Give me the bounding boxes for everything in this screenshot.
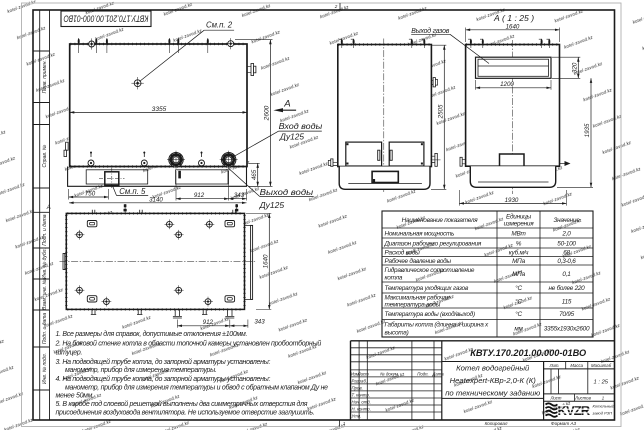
svg-text:Нач. отд.: Нач. отд. <box>352 400 371 405</box>
svg-text:Масштаб: Масштаб <box>591 363 612 368</box>
svg-text:Выход газов: Выход газов <box>411 27 450 35</box>
svg-text:68: 68 <box>563 250 570 257</box>
svg-text:343: 343 <box>254 319 265 326</box>
svg-text:465: 465 <box>251 169 258 180</box>
svg-text:1640: 1640 <box>262 254 269 268</box>
svg-text:Т. контр.: Т. контр. <box>352 393 371 398</box>
svg-text:куб.м/ч: куб.м/ч <box>509 249 529 257</box>
svg-text:См.п. 5: См.п. 5 <box>119 187 146 196</box>
svg-text:Единицы: Единицы <box>506 213 532 221</box>
svg-text:манометр, прибор для измерения: манометр, прибор для измерения температу… <box>65 383 328 391</box>
svg-text:1: 1 <box>343 421 346 426</box>
svg-text:МПа: МПа <box>512 258 525 265</box>
svg-text:МВт: МВт <box>511 230 526 237</box>
svg-text:Выход воды: Выход воды <box>260 187 314 197</box>
svg-text:Лит.: Лит. <box>549 363 560 368</box>
svg-text:Значение: Значение <box>553 217 580 224</box>
svg-text:Ду125: Ду125 <box>279 131 304 141</box>
svg-text:Масса: Масса <box>570 363 583 368</box>
svg-text:А: А <box>46 205 51 211</box>
svg-text:Наименование показателя: Наименование показателя <box>402 217 479 224</box>
svg-text:0,3-0,6: 0,3-0,6 <box>557 258 576 265</box>
svg-text:КВТУ.170.201.00.000-01ВО: КВТУ.170.201.00.000-01ВО <box>63 14 148 24</box>
svg-text:Лист: Лист <box>357 372 369 377</box>
svg-text:1935: 1935 <box>584 123 591 137</box>
svg-text:Подп. и дата: Подп. и дата <box>42 313 48 345</box>
svg-text:1 : 25: 1 : 25 <box>594 380 609 386</box>
svg-text:3140: 3140 <box>149 196 163 203</box>
svg-text:Справ. №: Справ. № <box>42 144 48 167</box>
svg-text:50-100: 50-100 <box>557 240 576 247</box>
svg-text:1200: 1200 <box>500 81 514 88</box>
svg-text:№ докум.: № докум. <box>380 372 399 377</box>
svg-text:Утв.: Утв. <box>352 414 362 419</box>
svg-text:Номинальная мощность: Номинальная мощность <box>385 230 455 237</box>
svg-text:Подп.: Подп. <box>417 372 428 377</box>
svg-text:2: 2 <box>334 4 338 9</box>
svg-text:912: 912 <box>203 319 214 326</box>
svg-text:Пров.: Пров. <box>352 386 363 391</box>
svg-text:Взам. инв. №: Взам. инв. № <box>42 278 48 310</box>
svg-text:Формат А3: Формат А3 <box>551 421 577 426</box>
svg-text:Котельный: Котельный <box>593 404 616 409</box>
svg-text:котла: котла <box>385 275 403 282</box>
svg-text:Котел водогрейный: Котел водогрейный <box>456 363 530 372</box>
svg-text:КВТУ.170.201.00.000-01ВО: КВТУ.170.201.00.000-01ВО <box>470 348 587 359</box>
svg-text:А ( 1 : 25 ): А ( 1 : 25 ) <box>493 13 534 23</box>
svg-text:Расход воды: Расход воды <box>385 249 421 257</box>
svg-text:Перв. примен.: Перв. примен. <box>42 60 48 93</box>
svg-text:См.п. 2: См.п. 2 <box>206 21 233 30</box>
svg-text:Температура уходящих газов: Температура уходящих газов <box>385 284 469 292</box>
svg-text:2,0: 2,0 <box>561 230 571 237</box>
svg-text:Копировал: Копировал <box>485 421 508 426</box>
svg-text:0,1: 0,1 <box>562 271 571 278</box>
svg-text:Диапазон рабочего регулировани: Диапазон рабочего регулирования <box>384 239 482 247</box>
svg-text:°С: °С <box>515 310 522 318</box>
svg-text:2600: 2600 <box>263 105 270 121</box>
svg-text:3. На подводящей трубе котла,: 3. На подводящей трубе котла, до запорно… <box>56 358 271 366</box>
svg-text:Гидравлическое сопротивление: Гидравлическое сопротивление <box>385 266 475 274</box>
svg-text:Лист: Лист <box>549 395 561 400</box>
svg-text:1930: 1930 <box>505 197 519 204</box>
svg-text:3355: 3355 <box>152 106 167 113</box>
svg-text:Рабочее давление воды: Рабочее давление воды <box>385 257 452 265</box>
svg-text:МПа: МПа <box>512 271 525 278</box>
svg-text:измерения: измерения <box>504 221 535 228</box>
svg-text:А: А <box>283 99 290 110</box>
svg-text:2. На боковой стенке котла в о: 2. На боковой стенке котла в области топ… <box>55 339 322 347</box>
svg-text:Heatexpert-КВр-2,0-К (К): Heatexpert-КВр-2,0-К (К) <box>450 376 537 385</box>
svg-text:4. На подводящей трубе котла,: 4. На подводящей трубе котла, до запорно… <box>56 375 271 383</box>
svg-text:Дата: Дата <box>431 372 444 377</box>
svg-text:5. В коробе под слоевой решетк: 5. В коробе под слоевой решеткой выполне… <box>56 400 308 408</box>
svg-text:Инв. № дубл.: Инв. № дубл. <box>42 248 48 279</box>
svg-text:Максимальная рабочая: Максимальная рабочая <box>385 294 451 302</box>
svg-text:Температура воды (вход/выход): Температура воды (вход/выход) <box>385 310 475 318</box>
svg-text:высота): высота) <box>385 329 409 336</box>
svg-text:температура воды: температура воды <box>385 301 441 309</box>
svg-text:2505: 2505 <box>437 104 444 119</box>
svg-text:°С: °С <box>515 284 522 292</box>
svg-text:манометр, прибор для измерения: манометр, прибор для измерения температу… <box>65 366 217 374</box>
svg-text:Габариты котла (длинна х ширин: Габариты котла (длинна х ширина х <box>385 320 490 328</box>
svg-text:1640: 1640 <box>506 23 520 30</box>
svg-text:завод РЗП: завод РЗП <box>592 411 613 416</box>
svg-text:343: 343 <box>234 192 245 199</box>
svg-text:320: 320 <box>571 62 578 73</box>
svg-text:Разраб.: Разраб. <box>352 379 368 384</box>
svg-text:не более 220: не более 220 <box>548 284 585 292</box>
svg-text:750: 750 <box>85 191 96 198</box>
svg-text:3355х1930х2600: 3355х1930х2600 <box>544 325 590 332</box>
svg-text:Н. контр.: Н. контр. <box>352 407 371 412</box>
svg-text:1. Все размеры для справок, до: 1. Все размеры для справок, допустимые о… <box>56 330 248 338</box>
svg-text:115: 115 <box>562 298 572 305</box>
svg-text:по техническому заданию: по техническому заданию <box>445 389 540 398</box>
svg-text:912: 912 <box>194 192 205 199</box>
svg-text:присоединения воздуховода вент: присоединения воздуховода вентилятора. Н… <box>56 409 315 417</box>
svg-text:°С: °С <box>515 297 522 305</box>
svg-text:Подп. и дата: Подп. и дата <box>42 214 48 246</box>
svg-text:менее 50мм.: менее 50мм. <box>56 392 95 399</box>
svg-text:70/95: 70/95 <box>559 311 574 318</box>
svg-text:штуцер.: штуцер. <box>56 349 83 356</box>
svg-text:Инв. № подл.: Инв. № подл. <box>42 353 48 384</box>
svg-text:Ду125: Ду125 <box>259 200 285 210</box>
svg-text:Вход воды: Вход воды <box>279 121 323 131</box>
svg-text:мм: мм <box>514 325 523 332</box>
svg-text:Листов: Листов <box>574 395 591 400</box>
svg-text:%: % <box>516 240 522 247</box>
